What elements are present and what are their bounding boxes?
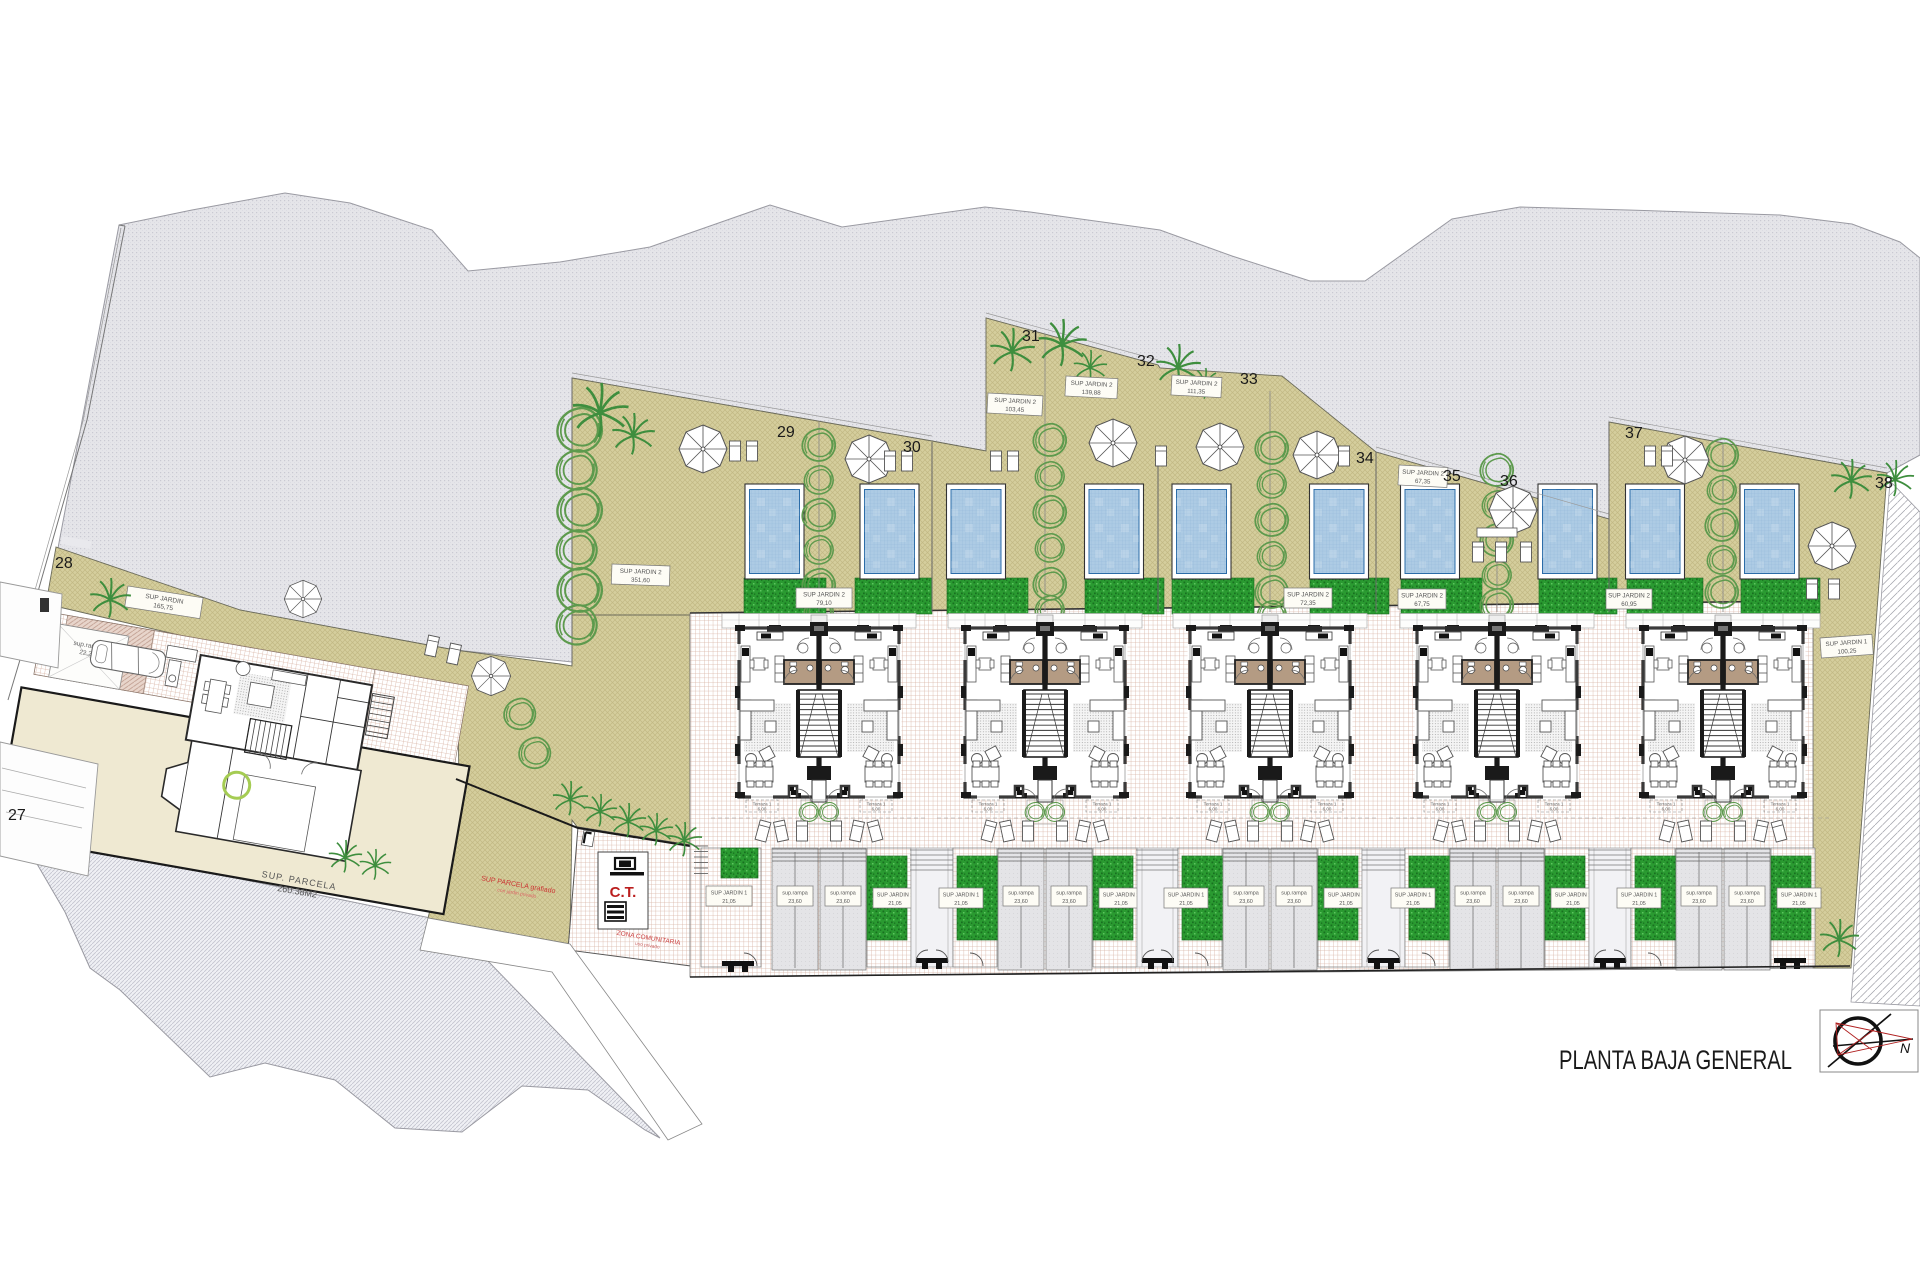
svg-text:sup.rampa: sup.rampa bbox=[1281, 891, 1306, 897]
svg-text:SUP JARDIN 1: SUP JARDIN 1 bbox=[943, 893, 979, 899]
svg-text:21,05: 21,05 bbox=[1179, 901, 1193, 907]
svg-text:6,00: 6,00 bbox=[1323, 807, 1332, 812]
svg-text:28: 28 bbox=[55, 555, 73, 572]
svg-text:SUP JARDIN 1: SUP JARDIN 1 bbox=[711, 891, 747, 897]
svg-text:21,05: 21,05 bbox=[1632, 901, 1646, 907]
svg-text:SUP JARDIN 1: SUP JARDIN 1 bbox=[1781, 893, 1817, 899]
svg-text:23,60: 23,60 bbox=[1062, 899, 1076, 905]
svg-text:351,60: 351,60 bbox=[631, 577, 651, 585]
svg-text:23,60: 23,60 bbox=[836, 899, 850, 905]
svg-text:34: 34 bbox=[1356, 450, 1374, 467]
svg-text:sup.rampa: sup.rampa bbox=[1734, 891, 1759, 897]
svg-text:sup.rampa: sup.rampa bbox=[1233, 891, 1258, 897]
svg-text:37: 37 bbox=[1625, 425, 1643, 442]
svg-text:SUP JARDIN 1: SUP JARDIN 1 bbox=[877, 893, 913, 899]
svg-text:6,00: 6,00 bbox=[1662, 807, 1671, 812]
svg-text:6,00: 6,00 bbox=[1098, 807, 1107, 812]
svg-text:23,60: 23,60 bbox=[1466, 899, 1480, 905]
svg-text:PLANTA BAJA GENERAL: PLANTA BAJA GENERAL bbox=[1559, 1045, 1792, 1075]
svg-text:38: 38 bbox=[1875, 475, 1893, 492]
svg-text:111,35: 111,35 bbox=[1187, 388, 1206, 396]
svg-text:SUP JARDIN 2: SUP JARDIN 2 bbox=[803, 592, 845, 599]
svg-text:23,60: 23,60 bbox=[1014, 899, 1028, 905]
svg-text:6,00: 6,00 bbox=[1550, 807, 1559, 812]
svg-text:67,75: 67,75 bbox=[1414, 601, 1430, 608]
svg-text:100,25: 100,25 bbox=[1837, 647, 1857, 655]
svg-text:SUP JARDIN 2: SUP JARDIN 2 bbox=[1401, 593, 1443, 600]
svg-text:N: N bbox=[1900, 1040, 1911, 1056]
svg-text:6,00: 6,00 bbox=[1436, 807, 1445, 812]
svg-text:sup.rampa: sup.rampa bbox=[1056, 891, 1081, 897]
svg-text:23,60: 23,60 bbox=[1692, 899, 1706, 905]
svg-text:6,00: 6,00 bbox=[1776, 807, 1785, 812]
svg-text:103,45: 103,45 bbox=[1005, 406, 1025, 414]
svg-text:sup.rampa: sup.rampa bbox=[1508, 891, 1533, 897]
svg-text:sup.rampa: sup.rampa bbox=[830, 891, 855, 897]
svg-text:23,60: 23,60 bbox=[1239, 899, 1253, 905]
svg-text:35: 35 bbox=[1443, 468, 1461, 485]
svg-text:31: 31 bbox=[1022, 328, 1040, 345]
svg-text:C.T.: C.T. bbox=[610, 884, 637, 901]
svg-text:6,00: 6,00 bbox=[984, 807, 993, 812]
svg-text:SUP JARDIN 1: SUP JARDIN 1 bbox=[1621, 893, 1657, 899]
svg-text:23,60: 23,60 bbox=[1287, 899, 1301, 905]
svg-text:21,05: 21,05 bbox=[954, 901, 968, 907]
svg-text:SUP JARDIN 2: SUP JARDIN 2 bbox=[1608, 593, 1650, 600]
svg-text:SUP JARDIN 2: SUP JARDIN 2 bbox=[620, 568, 663, 576]
svg-text:30: 30 bbox=[903, 439, 921, 456]
svg-text:72,35: 72,35 bbox=[1300, 600, 1316, 607]
svg-text:sup.rampa: sup.rampa bbox=[1460, 891, 1485, 897]
svg-text:SUP JARDIN 2: SUP JARDIN 2 bbox=[1287, 592, 1329, 599]
svg-text:sup.rampa: sup.rampa bbox=[1008, 891, 1033, 897]
svg-text:SUP JARDIN 1: SUP JARDIN 1 bbox=[1328, 893, 1364, 899]
svg-text:139,88: 139,88 bbox=[1082, 389, 1102, 397]
svg-text:23,60: 23,60 bbox=[788, 899, 802, 905]
svg-text:SUP JARDIN 1: SUP JARDIN 1 bbox=[1555, 893, 1591, 899]
svg-text:29: 29 bbox=[777, 424, 795, 441]
svg-text:21,05: 21,05 bbox=[1339, 901, 1353, 907]
svg-text:sup.rampa: sup.rampa bbox=[782, 891, 807, 897]
svg-text:36: 36 bbox=[1500, 473, 1518, 490]
svg-text:SUP JARDIN 1: SUP JARDIN 1 bbox=[1103, 893, 1139, 899]
svg-text:6,00: 6,00 bbox=[1209, 807, 1218, 812]
svg-text:79,10: 79,10 bbox=[816, 600, 832, 607]
svg-text:21,05: 21,05 bbox=[1792, 901, 1806, 907]
svg-text:23,60: 23,60 bbox=[1514, 899, 1528, 905]
svg-text:21,05: 21,05 bbox=[1406, 901, 1420, 907]
svg-text:21,05: 21,05 bbox=[722, 899, 736, 905]
svg-text:60,95: 60,95 bbox=[1621, 601, 1637, 608]
svg-text:SUP JARDIN 1: SUP JARDIN 1 bbox=[1168, 893, 1204, 899]
svg-text:32: 32 bbox=[1137, 353, 1155, 370]
svg-text:27: 27 bbox=[8, 807, 26, 824]
svg-text:33: 33 bbox=[1240, 371, 1258, 388]
svg-text:6,00: 6,00 bbox=[872, 807, 881, 812]
svg-text:21,05: 21,05 bbox=[888, 901, 902, 907]
svg-text:6,00: 6,00 bbox=[758, 807, 767, 812]
svg-text:21,05: 21,05 bbox=[1114, 901, 1128, 907]
svg-text:SUP JARDIN 1: SUP JARDIN 1 bbox=[1395, 893, 1431, 899]
svg-text:23,60: 23,60 bbox=[1740, 899, 1754, 905]
svg-text:sup.rampa: sup.rampa bbox=[1686, 891, 1711, 897]
svg-text:67,35: 67,35 bbox=[1415, 478, 1431, 486]
svg-text:21,05: 21,05 bbox=[1566, 901, 1580, 907]
